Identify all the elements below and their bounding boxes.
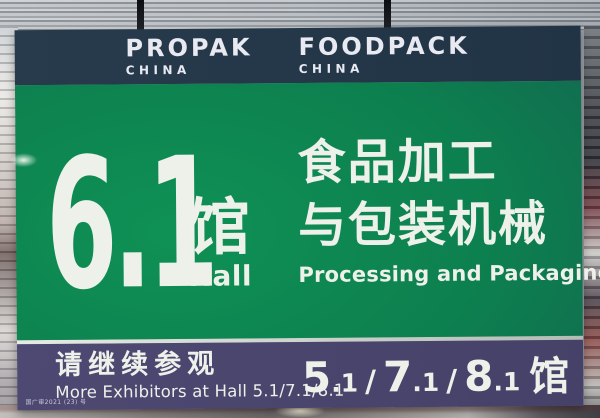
hall-separator-2: / xyxy=(446,367,457,397)
hall-8-major: 8 xyxy=(464,355,494,397)
category-cjk-line1: 食品加工 xyxy=(297,137,600,189)
hall-8-minor: .1 xyxy=(493,369,520,394)
hall-separator-1: / xyxy=(365,367,376,397)
brand-foodpack: FOODPACK CHINA xyxy=(298,34,470,76)
hall-label-cjk: 馆 xyxy=(188,196,252,258)
brand-band: PROPAK CHINA FOODPACK CHINA xyxy=(15,26,581,85)
hall-7-minor: .1 xyxy=(412,370,439,395)
more-halls-numbers: 5 .1 / 7 .1 / 8 .1 馆 xyxy=(302,355,570,399)
brand-propak-region: CHINA xyxy=(126,62,253,77)
sign-main-panel: 6.1 馆 Hall 食品加工 与包装机械 Processing and Pac… xyxy=(15,81,583,340)
brand-foodpack-name: FOODPACK xyxy=(298,34,469,59)
hall-label-en: Hall xyxy=(188,262,252,290)
exhibition-hall-photo: PROPAK CHINA FOODPACK CHINA 6.1 馆 Hall 食… xyxy=(0,0,600,418)
category-text: 食品加工 与包装机械 Processing and Packaging xyxy=(297,137,600,287)
footer-bar: 请继续参观 More Exhibitors at Hall 5.1/7.1/8.… xyxy=(17,340,584,410)
hall-5-major: 5 xyxy=(302,357,332,399)
ad-approval-number: 国广审2021 (23) 号 xyxy=(25,397,86,406)
hall-sign: PROPAK CHINA FOODPACK CHINA 6.1 馆 Hall 食… xyxy=(15,26,584,410)
halls-suffix-cjk: 馆 xyxy=(529,357,569,397)
brand-propak: PROPAK CHINA xyxy=(125,35,252,77)
hall-unit-label: 馆 Hall xyxy=(188,196,252,290)
hall-5-minor: .1 xyxy=(331,371,358,396)
brand-foodpack-region: CHINA xyxy=(299,61,470,76)
light-flare xyxy=(9,153,37,167)
category-cjk-line2: 与包装机械 xyxy=(298,199,600,251)
brand-propak-name: PROPAK xyxy=(125,35,252,60)
category-english: Processing and Packaging xyxy=(298,260,600,286)
hall-7-major: 7 xyxy=(383,356,413,398)
